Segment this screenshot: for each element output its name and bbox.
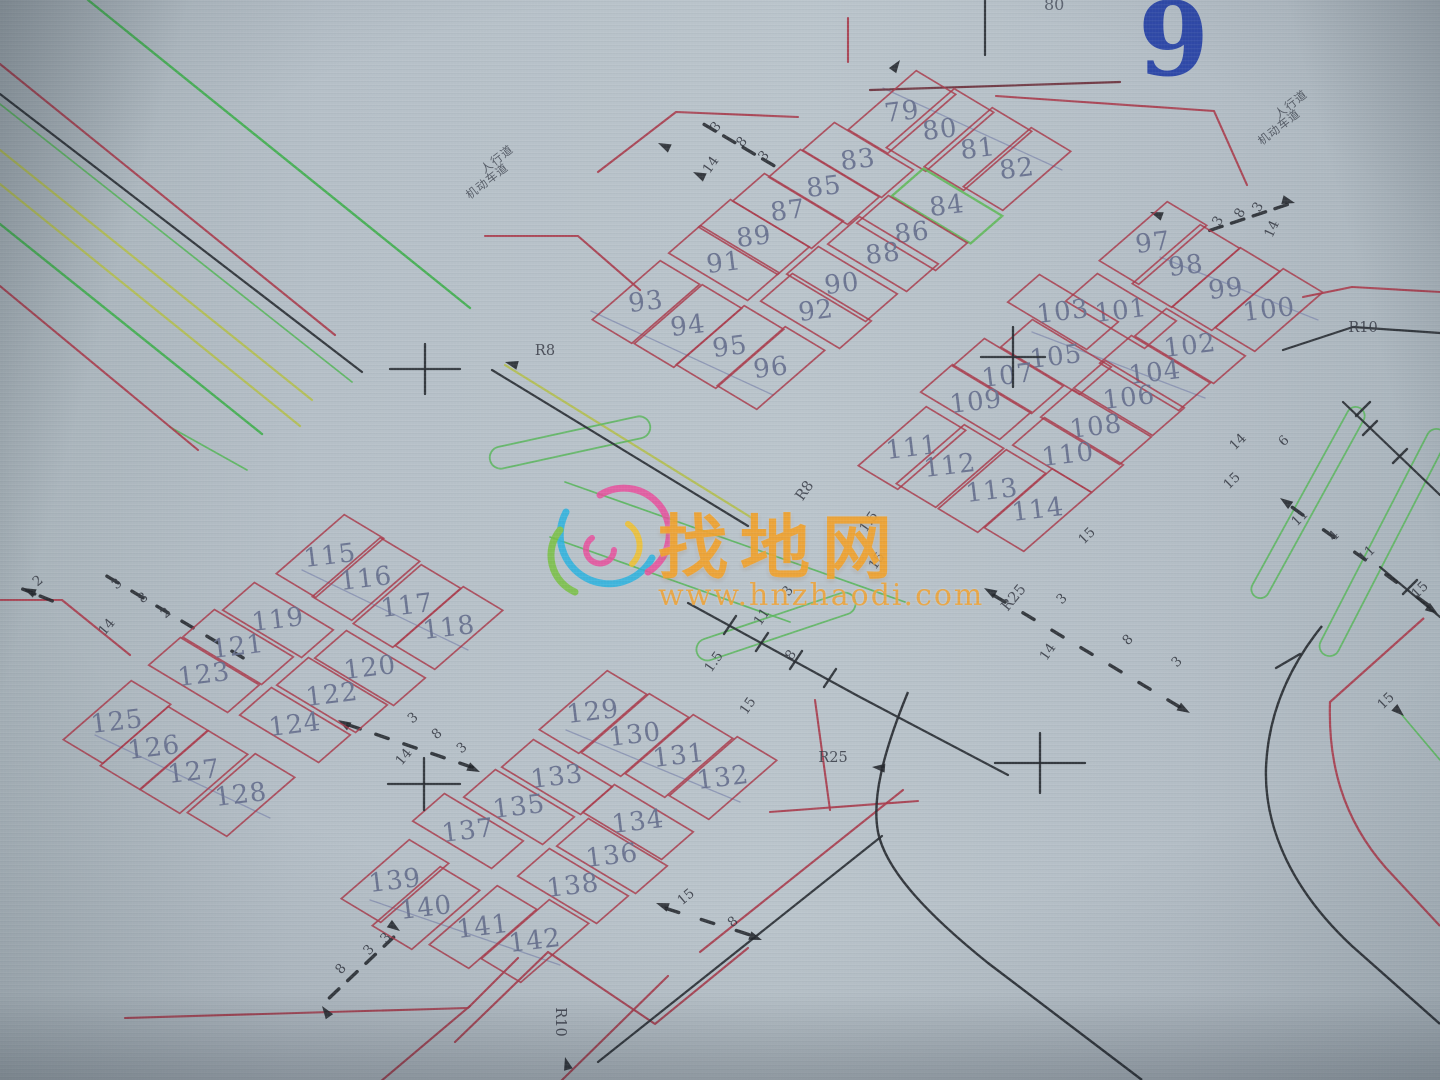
radius-label: R8 [535, 343, 555, 359]
road-edge-red [485, 236, 640, 290]
dimension-label: 8 [135, 589, 152, 607]
plan-photo: 7980818283848586878889909192939495969798… [0, 0, 1440, 1080]
road-edge-dark [870, 82, 1120, 90]
parcel-number: 84 [928, 189, 966, 223]
parcel-number: 116 [338, 561, 394, 597]
dimension-dash [1023, 613, 1034, 620]
parcel-number: 85 [805, 170, 843, 204]
road-edge-red [125, 958, 518, 1018]
road-edge-red [770, 801, 918, 812]
parcel-number: 137 [440, 813, 496, 849]
dimension-label: 4 [1325, 527, 1342, 544]
dimension-label: 15 [1408, 578, 1431, 601]
dimension-label: 14 [95, 615, 118, 638]
arrowhead-icon [561, 1056, 573, 1071]
parcel-number: 81 [959, 132, 997, 166]
greenbelt-line [88, 0, 470, 308]
arrowhead-icon [656, 139, 672, 153]
dimension-dash [348, 972, 357, 981]
dimension-dash [1081, 648, 1092, 655]
dimension-label: 8 [782, 647, 800, 663]
parcel-number: 140 [398, 890, 454, 926]
dimension-label: 8 [733, 134, 751, 151]
parcel-number: 123 [176, 657, 232, 693]
dimension-label: 3 [1168, 653, 1185, 670]
radius-label: R10 [552, 1007, 568, 1036]
dimension-label: 1.5 [701, 649, 726, 676]
parcel-number: 142 [507, 923, 563, 959]
dimension-dash [1110, 665, 1121, 672]
dimension-label: 14 [1226, 430, 1249, 453]
parcel-number: 92 [797, 294, 835, 328]
dimension-dash [1052, 630, 1063, 637]
greenway-line [565, 482, 905, 602]
dimension-dash [329, 989, 338, 998]
parcel-number: 96 [752, 351, 790, 385]
greenway-line [0, 104, 352, 382]
road-edge-black [492, 370, 748, 526]
dimension-label: 3 [1209, 213, 1227, 228]
parcel-number: 118 [421, 610, 477, 646]
parcel-number: 114 [1010, 492, 1066, 528]
dimension-label: 15 [866, 549, 889, 572]
road-edge-red [700, 790, 903, 952]
parcel-number: 128 [213, 777, 269, 813]
arrowhead-icon [387, 920, 403, 935]
road-edge-black [688, 603, 1008, 775]
dimension-label: 1.5 [856, 509, 881, 536]
road-corner-curve [876, 692, 1142, 1080]
radius-label: R25 [818, 750, 847, 766]
greenway-line [1402, 715, 1440, 760]
dimension-label: 2 [158, 604, 175, 622]
dimension-label: 14 [392, 745, 415, 768]
dimension-dash [736, 931, 748, 935]
dimension-dash [1139, 683, 1150, 690]
top-dimension-number: 80 [1044, 0, 1064, 14]
dimension-label: 3 [377, 930, 395, 947]
arrowhead-icon [889, 57, 904, 73]
dimension-tick [724, 616, 736, 634]
road-edge-red [0, 64, 335, 335]
plan-drawing: 7980818283848586878889909192939495969798… [0, 0, 1440, 1080]
dimension-label: 2 [30, 572, 47, 590]
dimension-tick [1356, 402, 1370, 416]
dimension-label: 3 [779, 583, 797, 599]
median-island [1248, 404, 1368, 602]
dimension-label: 3 [707, 119, 725, 136]
dimension-label: 14 [1037, 640, 1060, 663]
dimension-dash [666, 909, 678, 913]
parcel-number: 99 [1207, 272, 1245, 306]
parcel-number: 87 [769, 194, 807, 228]
road-edge-red [0, 286, 198, 450]
dimension-label: 8 [429, 725, 446, 743]
dimension-label: 15 [737, 694, 760, 717]
parcel-number: 82 [998, 152, 1036, 186]
dimension-dash [432, 753, 444, 757]
dimension-dash [701, 920, 713, 924]
road-corner-curve [1266, 626, 1440, 1024]
parcel-number: 98 [1167, 249, 1205, 283]
road-edge-red [380, 1006, 470, 1080]
dimension-label: 3 [405, 709, 422, 727]
parcel-number: 100 [1241, 292, 1297, 328]
dimension-dash [182, 621, 193, 628]
parcel-number: 110 [1040, 437, 1096, 473]
dimension-label: 8 [1231, 205, 1249, 220]
dimension-label: 3 [454, 739, 471, 757]
dimension-label: 14 [1261, 218, 1283, 240]
dimension-label: 15 [1220, 469, 1243, 492]
parcel-number: 95 [711, 330, 749, 364]
dimension-label: 6 [1275, 432, 1292, 449]
parcel-number: 124 [267, 707, 323, 743]
parcel-number: 93 [627, 285, 665, 319]
radius-label: R25 [998, 582, 1029, 615]
parcel-number: 138 [545, 868, 601, 904]
parcel-number: 83 [839, 143, 877, 177]
radius-label: R10 [1348, 320, 1377, 336]
greenway-line [550, 537, 790, 622]
dimension-label: 15 [1075, 524, 1098, 547]
road-edge-red-curve [1330, 618, 1440, 926]
parcel-number: 79 [883, 95, 921, 129]
greenway-line [170, 427, 247, 470]
parcel-number: 94 [669, 309, 707, 343]
radius-label: R8 [793, 478, 818, 504]
dimension-label: 11 [1288, 506, 1311, 529]
road-edge-black [598, 836, 882, 1062]
parcel-number: 132 [695, 760, 751, 796]
arrowhead-icon [1148, 208, 1163, 221]
parcel-number: 88 [864, 237, 902, 271]
parcel-number: 109 [948, 384, 1004, 420]
parcel-number: 103 [1035, 294, 1091, 330]
sheet-number: 9 [1138, 0, 1258, 100]
dimension-label: 11 [1355, 542, 1378, 565]
road-edge-red [560, 976, 668, 1080]
parcel-number: 91 [705, 246, 743, 280]
dimension-dash [1168, 700, 1179, 707]
road-edge-red [455, 948, 748, 1042]
dimension-label: 8 [1119, 631, 1136, 648]
dimension-label: 3 [109, 575, 126, 593]
dimension-label: 3 [1053, 590, 1070, 607]
parcel-number: 135 [491, 789, 547, 825]
dimension-dash [376, 734, 388, 738]
lane-marking-line [0, 150, 312, 400]
dimension-dash [1275, 205, 1287, 209]
dimension-label: 15 [674, 885, 697, 908]
parcel-number: 134 [610, 804, 666, 840]
dimension-label: 8 [332, 961, 350, 978]
median-island [488, 414, 653, 470]
